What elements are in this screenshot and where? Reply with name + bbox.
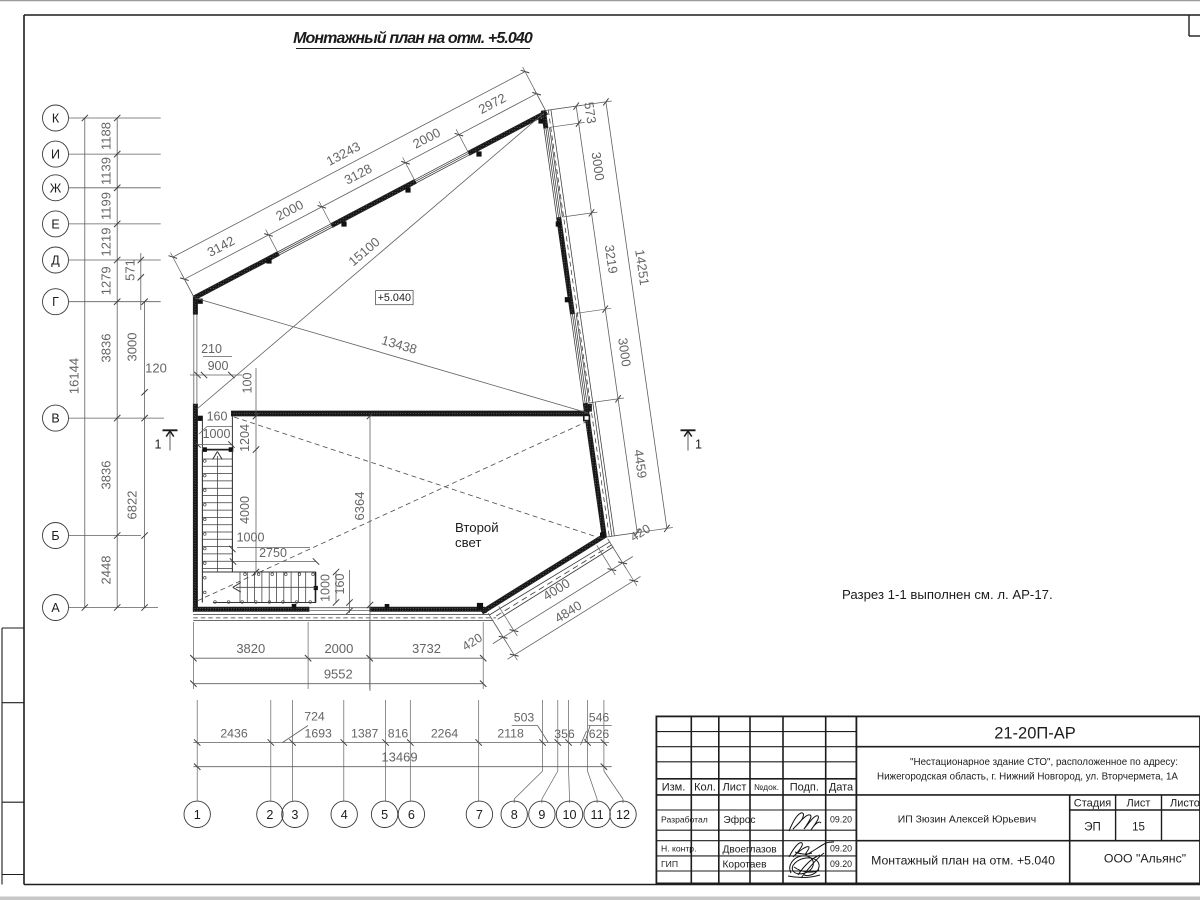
svg-text:21-20П-АР: 21-20П-АР — [994, 725, 1076, 743]
svg-text:571: 571 — [123, 259, 138, 281]
svg-text:160: 160 — [207, 410, 228, 424]
svg-text:Листов: Листов — [1170, 798, 1200, 810]
svg-text:6: 6 — [408, 808, 415, 822]
svg-text:2750: 2750 — [259, 546, 287, 560]
svg-text:15: 15 — [1132, 822, 1145, 834]
svg-text:9552: 9552 — [324, 667, 353, 682]
svg-text:1: 1 — [155, 438, 162, 452]
svg-text:К: К — [52, 112, 60, 126]
svg-text:2264: 2264 — [431, 726, 459, 740]
svg-text:09.20: 09.20 — [830, 815, 852, 825]
svg-text:120: 120 — [145, 361, 167, 376]
svg-text:2448: 2448 — [99, 556, 114, 585]
svg-text:1139: 1139 — [99, 157, 114, 185]
svg-text:210: 210 — [201, 342, 222, 356]
svg-text:ИП Зюзин Алексей Юрьевич: ИП Зюзин Алексей Юрьевич — [898, 815, 1036, 826]
svg-text:503: 503 — [514, 711, 535, 725]
svg-text:Монтажный план на отм. +5.040: Монтажный план на отм. +5.040 — [871, 854, 1055, 868]
svg-text:Разработал: Разработал — [661, 815, 708, 825]
svg-text:1693: 1693 — [305, 726, 333, 740]
svg-text:09.20: 09.20 — [830, 844, 852, 854]
svg-text:2118: 2118 — [497, 726, 524, 740]
svg-text:Д: Д — [51, 254, 60, 268]
svg-text:3000: 3000 — [125, 333, 140, 362]
svg-text:Коротаев: Коротаев — [723, 859, 767, 870]
svg-text:Нижегородская область, г. Нижн: Нижегородская область, г. Нижний Новгоро… — [877, 772, 1178, 783]
svg-text:573: 573 — [581, 101, 599, 125]
svg-text:Изм.: Изм. — [662, 782, 686, 794]
svg-text:3732: 3732 — [412, 641, 441, 656]
svg-text:В: В — [51, 412, 59, 426]
svg-text:Лист: Лист — [723, 782, 747, 794]
svg-text:Подп.: Подп. — [790, 782, 819, 794]
svg-text:3820: 3820 — [236, 641, 265, 656]
svg-text:13469: 13469 — [381, 750, 417, 765]
svg-text:356: 356 — [554, 727, 575, 741]
svg-text:09.20: 09.20 — [830, 859, 852, 869]
svg-text:6822: 6822 — [125, 491, 140, 520]
svg-text:3: 3 — [291, 808, 298, 822]
svg-text:626: 626 — [589, 727, 610, 741]
svg-text:свет: свет — [455, 535, 481, 550]
svg-text:1279: 1279 — [99, 266, 114, 295]
svg-text:1387: 1387 — [351, 726, 379, 740]
svg-text:8: 8 — [511, 808, 518, 822]
svg-text:1204: 1204 — [238, 424, 252, 452]
svg-text:1: 1 — [695, 438, 702, 452]
svg-text:ООО "Альянс": ООО "Альянс" — [1104, 852, 1186, 866]
svg-text:Г: Г — [52, 295, 59, 309]
svg-text:1: 1 — [194, 808, 201, 822]
svg-text:ГИП: ГИП — [661, 859, 678, 869]
svg-text:А: А — [51, 601, 60, 615]
svg-text:2: 2 — [266, 808, 273, 822]
svg-text:"Нестационарное здание СТО", р: "Нестационарное здание СТО", расположенн… — [910, 757, 1178, 768]
svg-text:ЭП: ЭП — [1084, 822, 1101, 834]
svg-text:16144: 16144 — [67, 358, 82, 394]
svg-text:Второй: Второй — [455, 520, 499, 535]
svg-text:1000: 1000 — [237, 531, 265, 545]
svg-text:+5.040: +5.040 — [378, 292, 411, 304]
svg-text:6364: 6364 — [352, 492, 367, 521]
svg-text:4000: 4000 — [238, 496, 252, 524]
svg-text:1188: 1188 — [99, 122, 114, 150]
svg-text:3836: 3836 — [99, 461, 114, 490]
svg-text:3836: 3836 — [99, 334, 114, 363]
svg-text:12: 12 — [616, 808, 630, 822]
svg-text:100: 100 — [241, 373, 255, 394]
svg-text:№док.: №док. — [754, 782, 779, 792]
svg-text:7: 7 — [476, 808, 483, 822]
svg-text:1000: 1000 — [319, 574, 333, 602]
svg-text:9: 9 — [538, 808, 545, 822]
svg-text:И: И — [51, 148, 60, 162]
svg-text:10: 10 — [562, 808, 576, 822]
svg-text:Кол.: Кол. — [694, 782, 716, 794]
svg-text:1219: 1219 — [99, 228, 114, 257]
svg-text:Двоеглазов: Двоеглазов — [723, 844, 777, 855]
svg-text:2000: 2000 — [324, 641, 353, 656]
svg-text:Е: Е — [51, 217, 59, 231]
svg-text:Лист: Лист — [1127, 798, 1151, 810]
svg-text:Монтажный план на отм. +5.040: Монтажный план на отм. +5.040 — [293, 30, 533, 47]
svg-text:Б: Б — [51, 529, 59, 543]
svg-text:5: 5 — [381, 808, 388, 822]
svg-text:Дата: Дата — [829, 782, 854, 794]
svg-text:Н. контр.: Н. контр. — [661, 844, 696, 854]
svg-text:1199: 1199 — [99, 192, 114, 220]
svg-text:2436: 2436 — [220, 726, 248, 740]
svg-text:Стадия: Стадия — [1074, 798, 1112, 810]
svg-text:160: 160 — [333, 574, 347, 595]
svg-text:724: 724 — [304, 710, 325, 724]
svg-text:816: 816 — [388, 726, 409, 740]
svg-text:11: 11 — [591, 808, 604, 822]
svg-text:546: 546 — [589, 711, 610, 725]
svg-text:Ж: Ж — [50, 181, 62, 195]
svg-text:Эфрос: Эфрос — [723, 814, 755, 826]
svg-text:900: 900 — [208, 359, 229, 373]
svg-text:Разрез 1-1 выполнен см. л. АР-: Разрез 1-1 выполнен см. л. АР-17. — [842, 587, 1053, 602]
svg-text:1000: 1000 — [203, 427, 231, 441]
svg-text:4: 4 — [341, 808, 348, 822]
